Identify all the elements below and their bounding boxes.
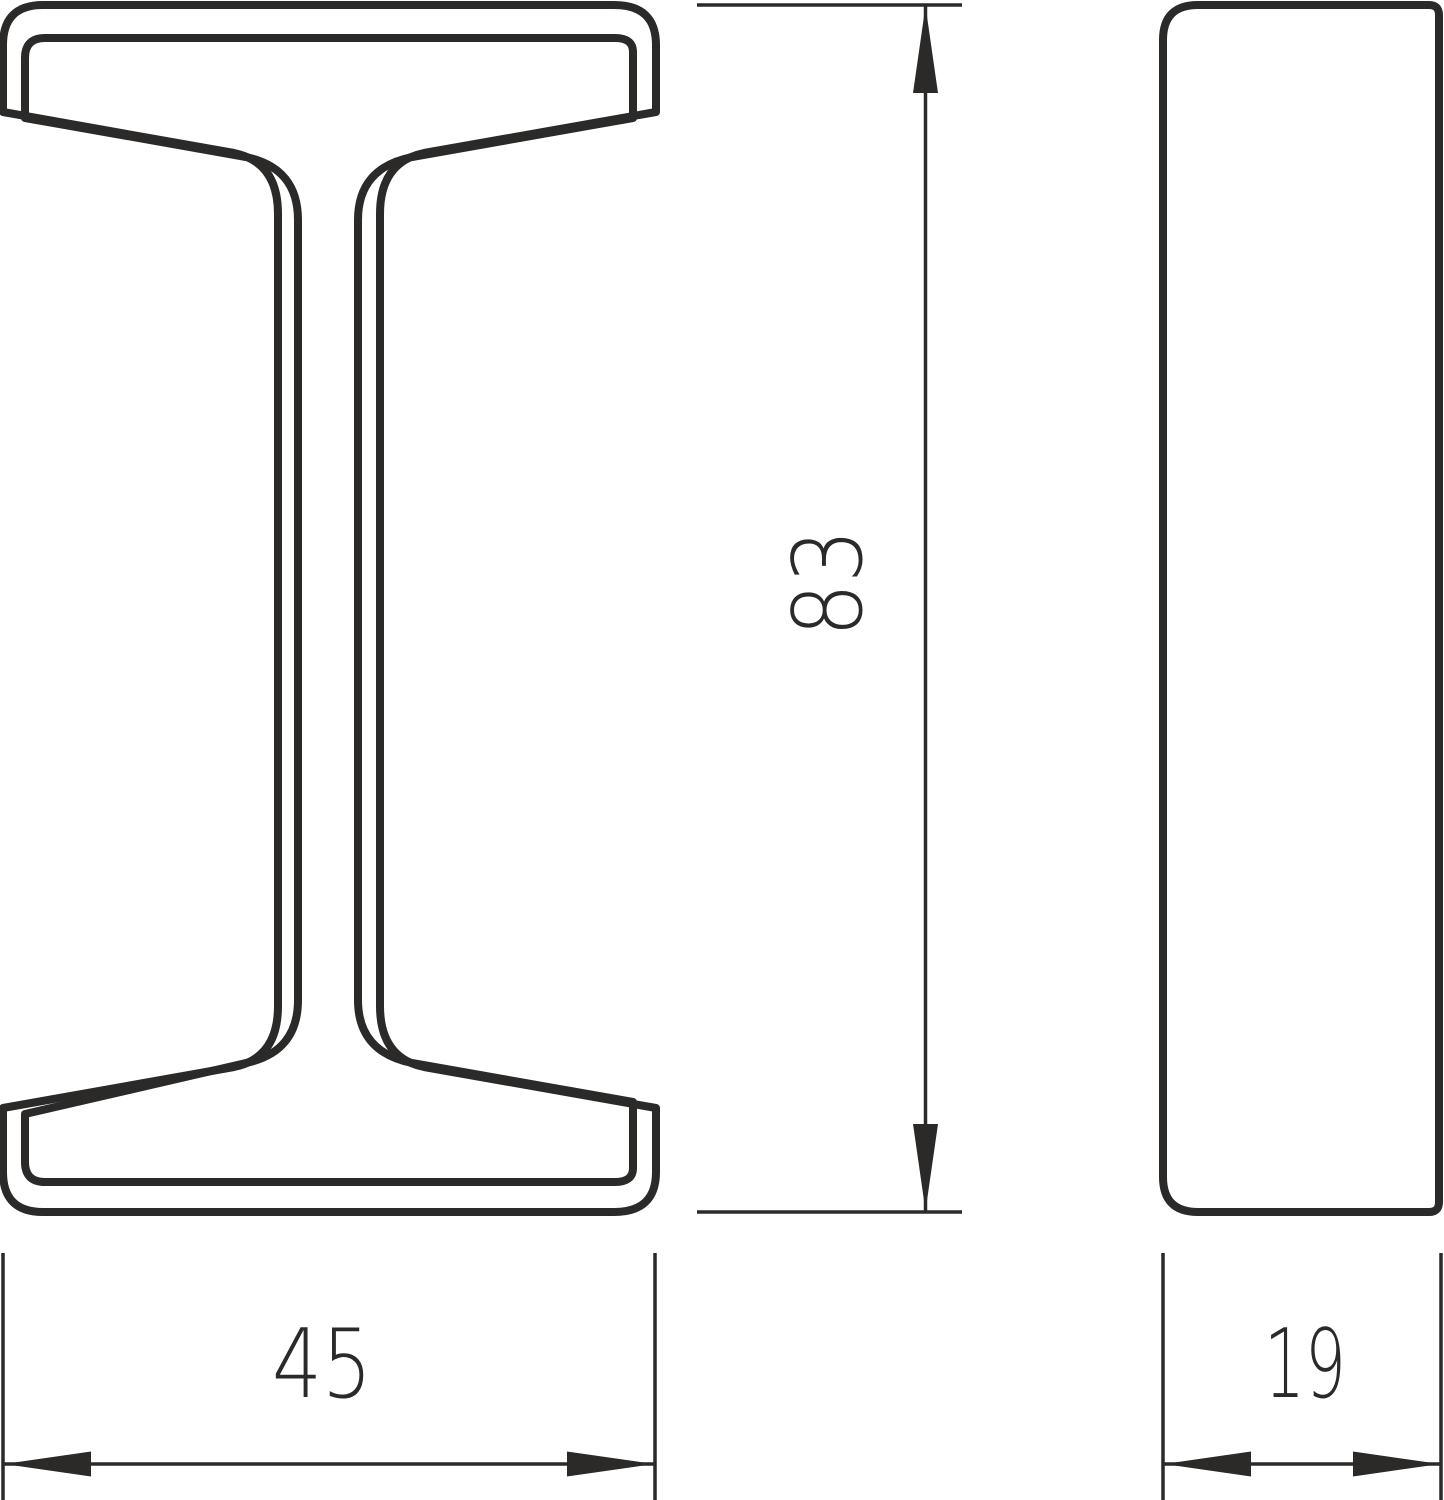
ibeam-outer-contour (3, 5, 656, 1212)
arrow-up-icon (913, 6, 938, 93)
drawing-canvas: 83 45 19 (0, 0, 1444, 1500)
arrow-right-icon (567, 1452, 654, 1477)
arrow-left-icon (4, 1452, 91, 1477)
dim-label-width: 45 (272, 1310, 372, 1420)
ibeam-inner-contour (25, 38, 633, 1182)
arrow-down-icon (913, 1124, 938, 1211)
height-dimension: 83 (697, 5, 962, 1212)
front-view (3, 5, 656, 1212)
side-view-outline (1163, 5, 1439, 1212)
side-view (1163, 5, 1439, 1212)
depth-dimension: 19 (1163, 1253, 1441, 1500)
arrow-right-icon (1353, 1452, 1440, 1477)
dim-label-depth: 19 (1264, 1310, 1346, 1420)
arrow-left-icon (1164, 1452, 1251, 1477)
dim-label-height: 83 (774, 529, 884, 637)
drawing-page: 83 45 19 (0, 0, 1444, 1500)
width-dimension: 45 (3, 1253, 655, 1500)
